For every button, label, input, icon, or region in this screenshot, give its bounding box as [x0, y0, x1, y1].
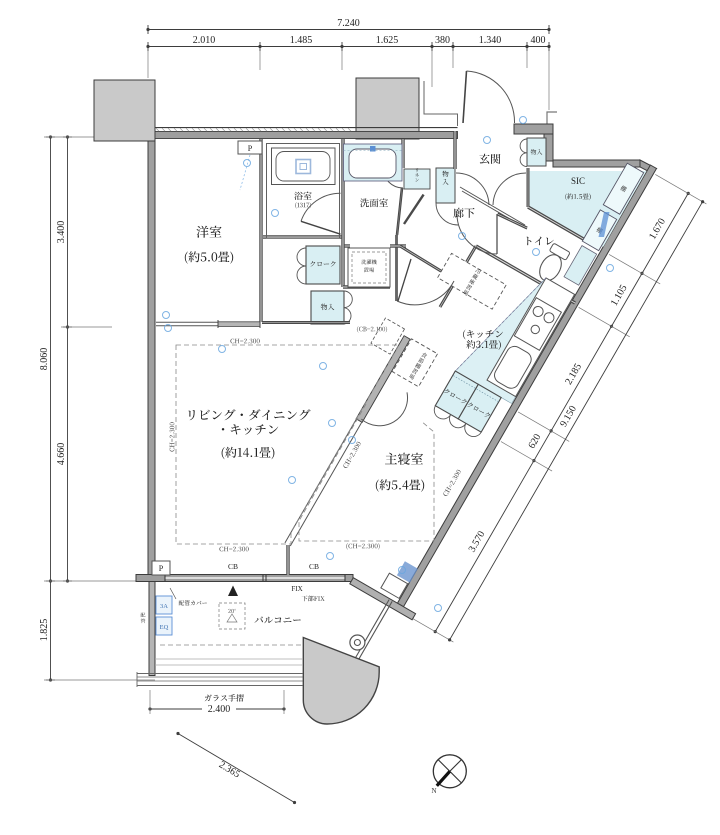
- svg-text:P: P: [248, 144, 253, 153]
- svg-text:FIX: FIX: [291, 585, 302, 593]
- svg-text:2.010: 2.010: [193, 35, 216, 46]
- svg-text:EQ: EQ: [160, 624, 169, 631]
- svg-text:3.400: 3.400: [56, 221, 67, 244]
- svg-text:1.485: 1.485: [290, 35, 313, 46]
- svg-text:8.060: 8.060: [39, 348, 50, 371]
- svg-text:2.400: 2.400: [208, 704, 231, 715]
- svg-text:N: N: [431, 787, 436, 795]
- svg-text:3A: 3A: [160, 603, 168, 610]
- svg-text:CB: CB: [309, 562, 319, 571]
- svg-text:CB: CB: [228, 562, 238, 571]
- svg-text:1.625: 1.625: [376, 35, 399, 46]
- svg-text:1.825: 1.825: [39, 619, 50, 642]
- svg-text:P: P: [159, 564, 164, 573]
- svg-text:380: 380: [435, 35, 450, 46]
- svg-text:SIC: SIC: [571, 176, 585, 186]
- svg-text:1.340: 1.340: [479, 35, 502, 46]
- svg-text:7.240: 7.240: [337, 18, 360, 29]
- svg-text:4.660: 4.660: [56, 443, 67, 466]
- svg-text:400: 400: [531, 35, 546, 46]
